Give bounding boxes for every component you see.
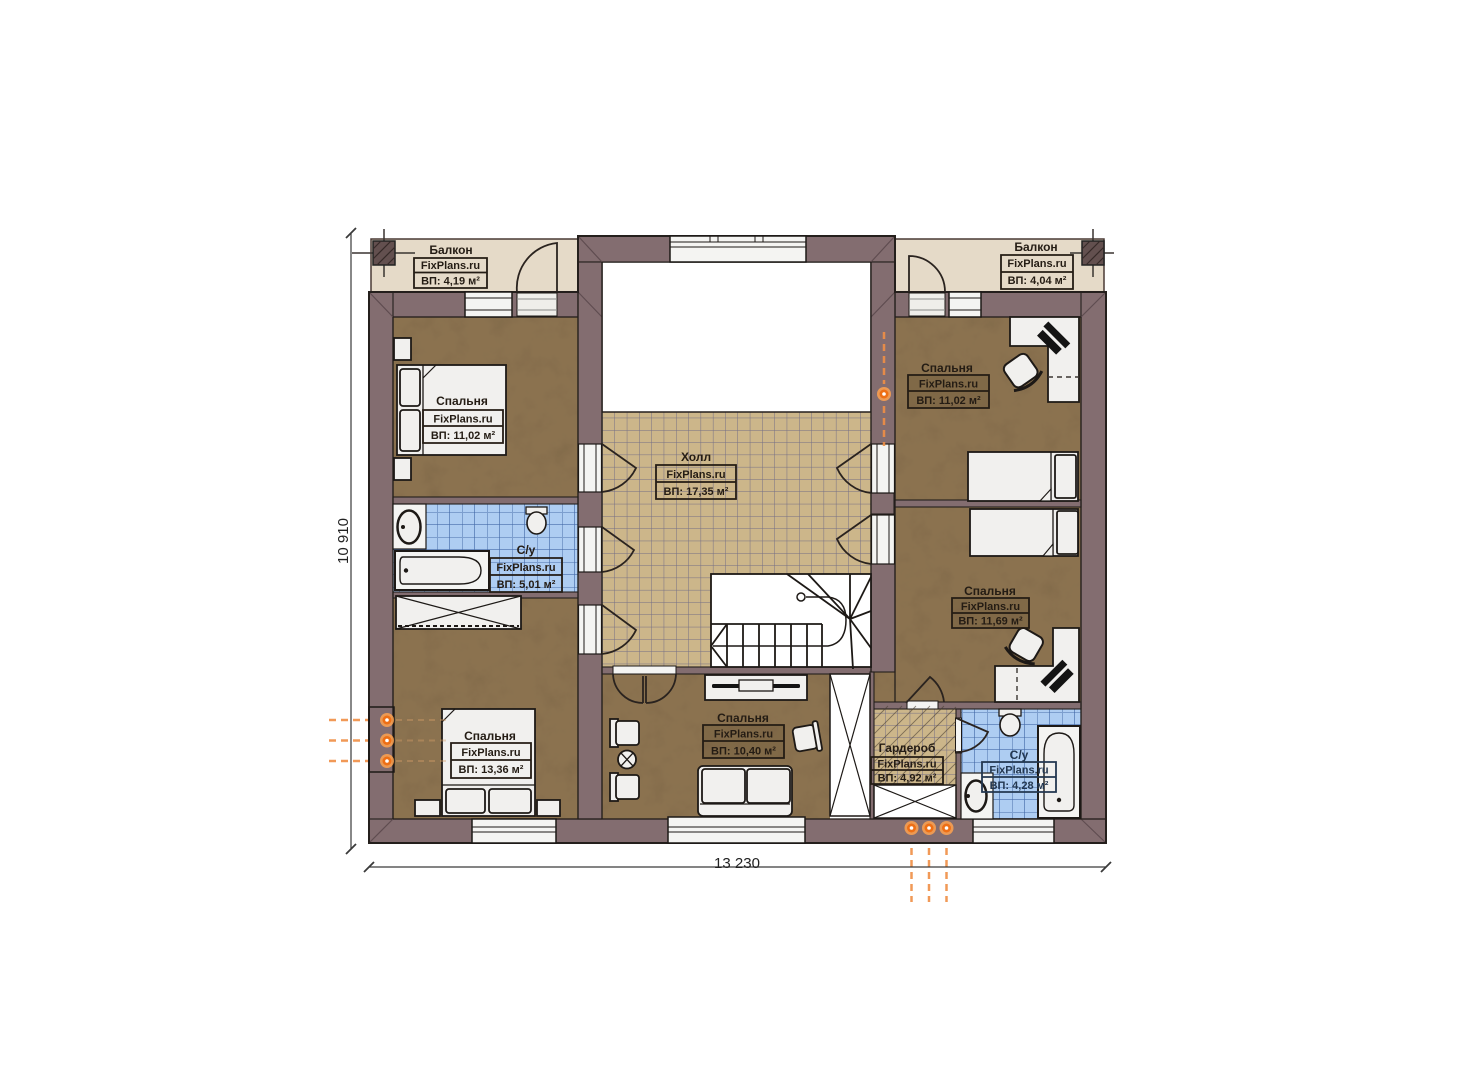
svg-text:FixPlans.ru: FixPlans.ru bbox=[877, 759, 936, 771]
svg-text:Спальня: Спальня bbox=[921, 361, 973, 375]
svg-text:Холл: Холл bbox=[681, 450, 711, 464]
svg-text:Гардероб: Гардероб bbox=[879, 741, 936, 755]
svg-text:FixPlans.ru: FixPlans.ru bbox=[433, 414, 492, 426]
svg-text:ВП: 4,19 м²: ВП: 4,19 м² bbox=[421, 276, 480, 288]
svg-text:ВП: 13,36 м²: ВП: 13,36 м² bbox=[459, 764, 524, 776]
svg-text:ВП: 5,01 м²: ВП: 5,01 м² bbox=[497, 579, 556, 591]
svg-text:FixPlans.ru: FixPlans.ru bbox=[989, 765, 1048, 777]
svg-text:С/у: С/у bbox=[1010, 748, 1029, 762]
svg-text:ВП: 17,35 м²: ВП: 17,35 м² bbox=[664, 486, 729, 498]
svg-text:Спальня: Спальня bbox=[464, 729, 516, 743]
svg-text:FixPlans.ru: FixPlans.ru bbox=[421, 260, 480, 272]
svg-text:FixPlans.ru: FixPlans.ru bbox=[1007, 258, 1066, 270]
svg-text:ВП: 4,28 м²: ВП: 4,28 м² bbox=[990, 780, 1049, 792]
svg-text:ВП: 4,04 м²: ВП: 4,04 м² bbox=[1008, 275, 1067, 287]
svg-text:ВП: 11,02 м²: ВП: 11,02 м² bbox=[431, 430, 496, 442]
svg-text:10 910: 10 910 bbox=[335, 518, 352, 564]
svg-text:ВП: 10,40 м²: ВП: 10,40 м² bbox=[711, 746, 776, 758]
svg-text:FixPlans.ru: FixPlans.ru bbox=[961, 601, 1020, 613]
svg-text:FixPlans.ru: FixPlans.ru bbox=[714, 729, 773, 741]
svg-text:Спальня: Спальня bbox=[436, 394, 488, 408]
svg-text:С/у: С/у bbox=[517, 543, 536, 557]
svg-text:FixPlans.ru: FixPlans.ru bbox=[496, 562, 555, 574]
svg-text:FixPlans.ru: FixPlans.ru bbox=[919, 379, 978, 391]
svg-text:Балкон: Балкон bbox=[1014, 240, 1057, 254]
svg-text:Спальня: Спальня bbox=[717, 711, 769, 725]
svg-text:ВП: 11,69 м²: ВП: 11,69 м² bbox=[958, 616, 1023, 628]
svg-text:ВП: 4,92 м²: ВП: 4,92 м² bbox=[878, 773, 937, 785]
svg-text:FixPlans.ru: FixPlans.ru bbox=[666, 469, 725, 481]
svg-text:FixPlans.ru: FixPlans.ru bbox=[461, 747, 520, 759]
svg-text:Спальня: Спальня bbox=[964, 584, 1016, 598]
svg-text:Балкон: Балкон bbox=[429, 243, 472, 257]
svg-text:13 230: 13 230 bbox=[714, 855, 760, 872]
svg-text:ВП: 11,02 м²: ВП: 11,02 м² bbox=[916, 395, 981, 407]
